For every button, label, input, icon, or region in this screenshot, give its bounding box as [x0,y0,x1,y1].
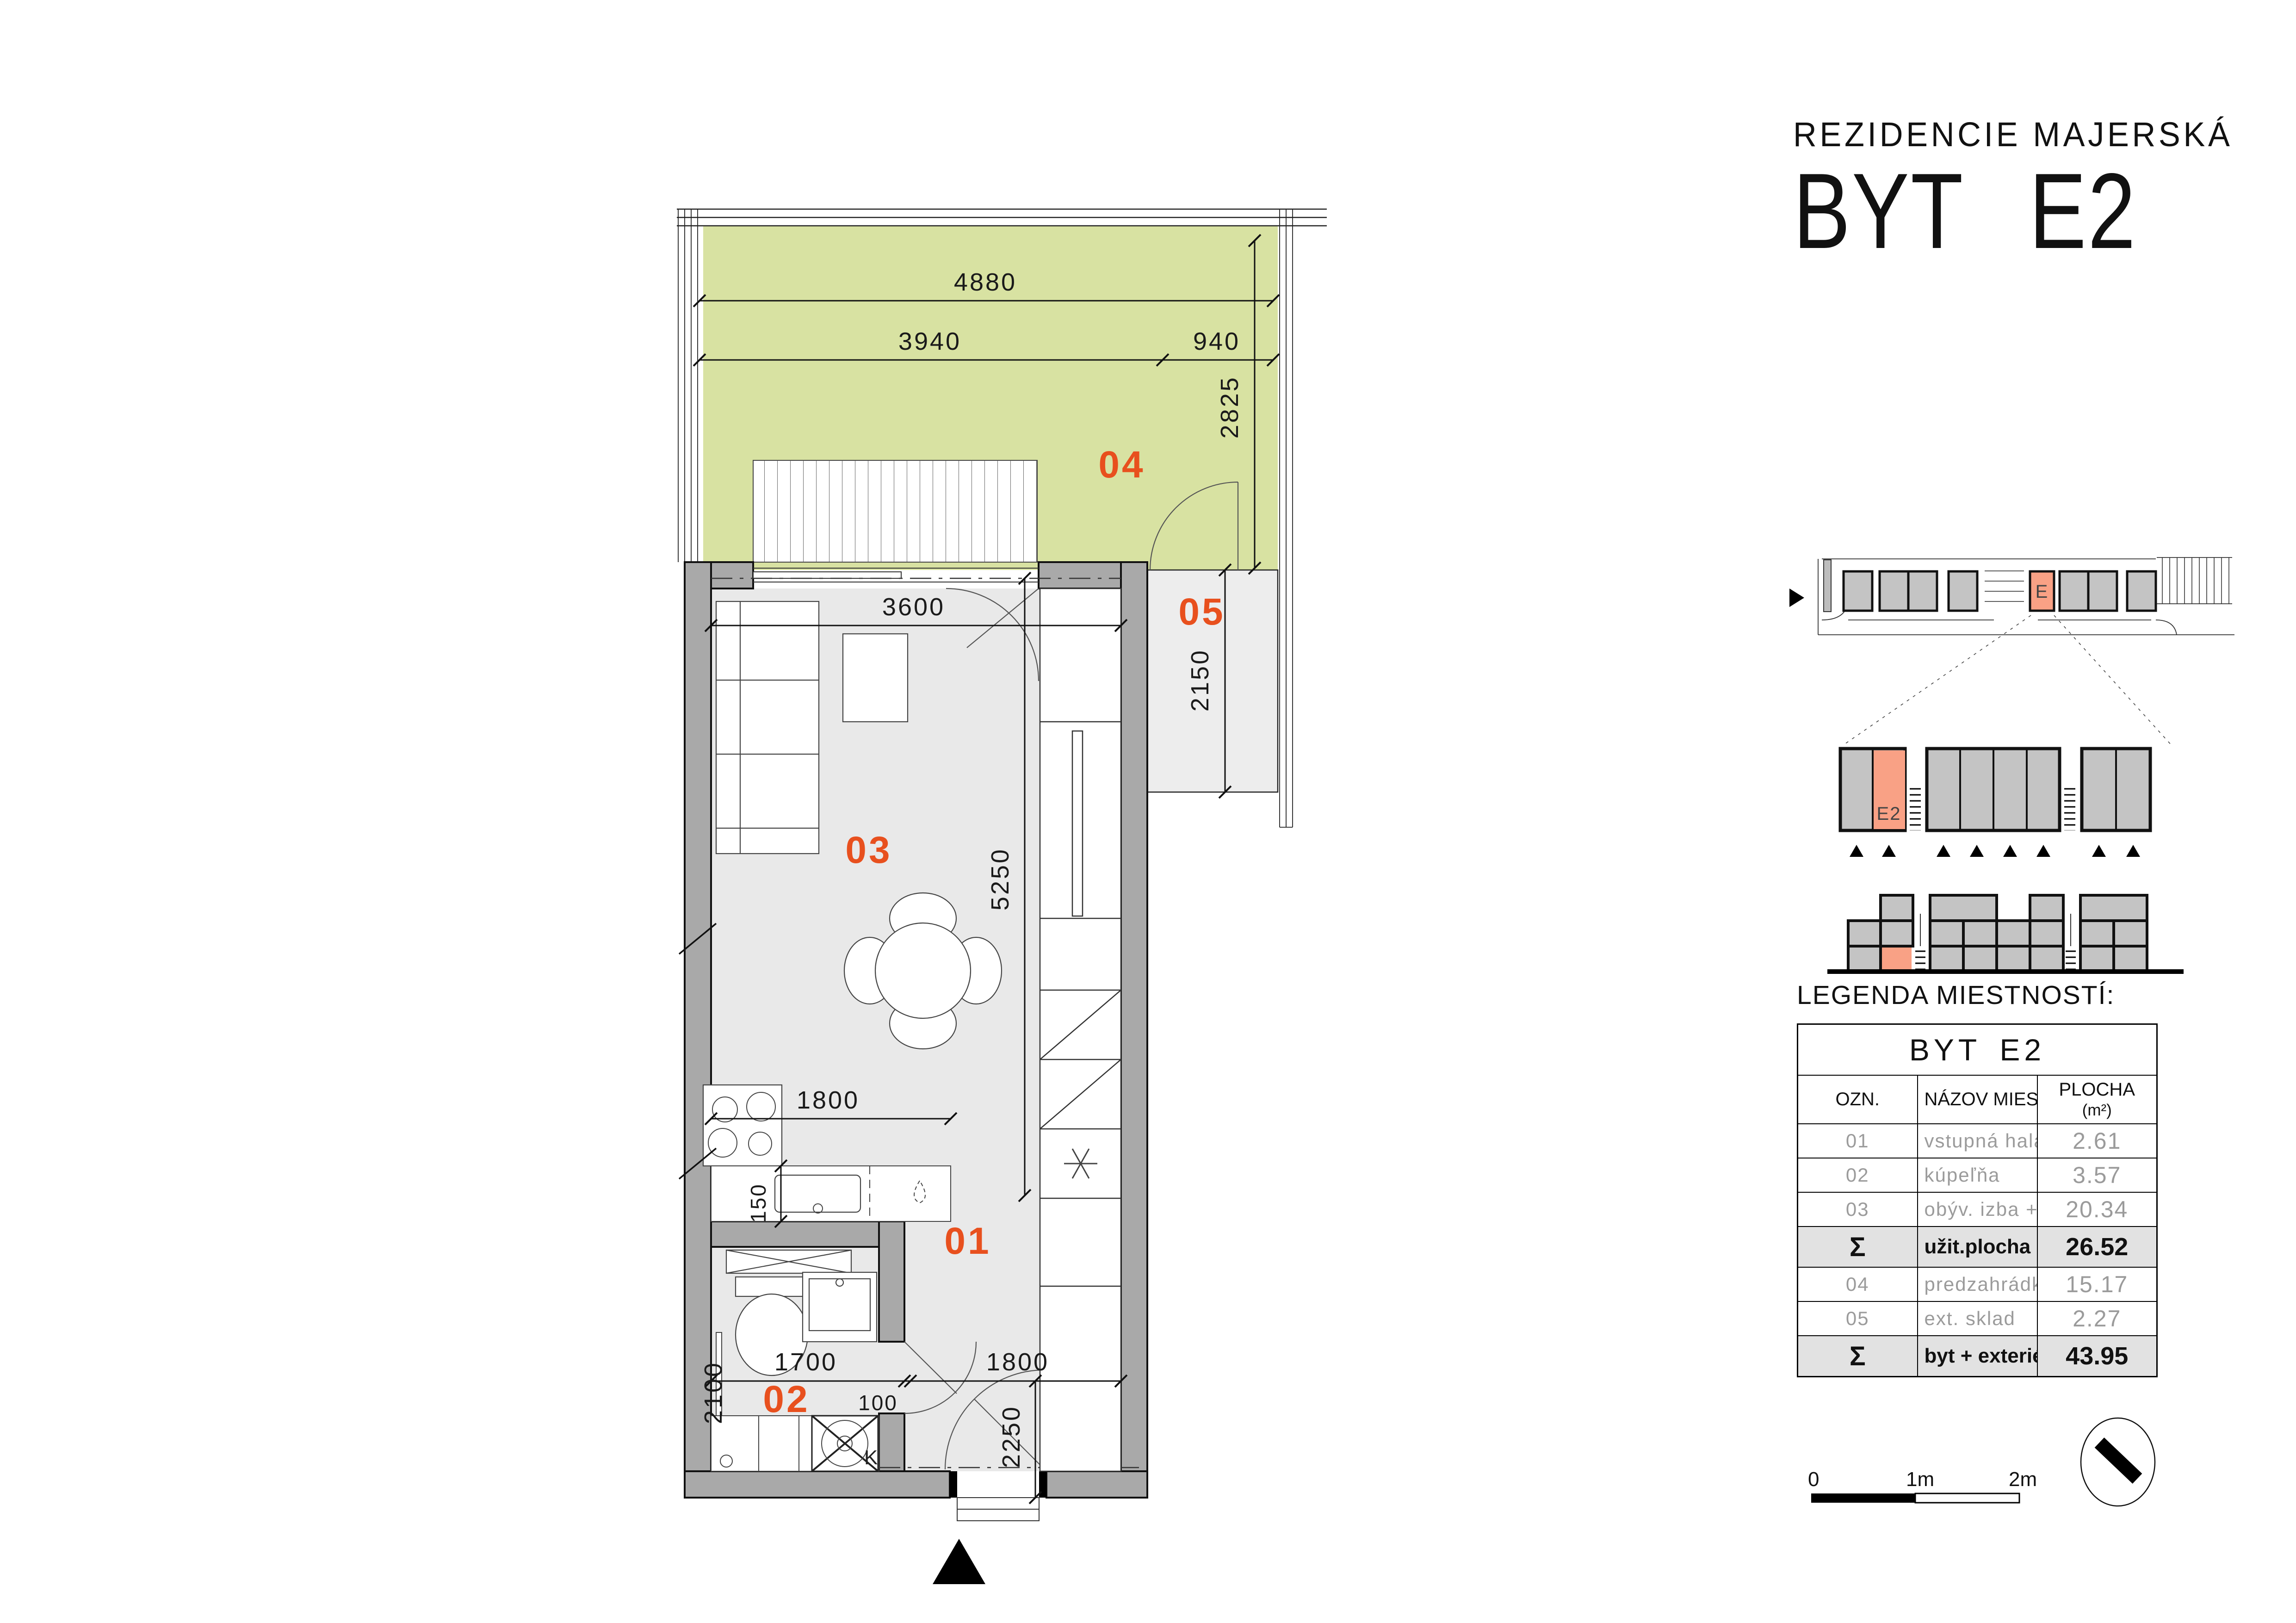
dim-2250: 2250 [997,1405,1025,1468]
dim-100: 100 [858,1391,898,1415]
dim-1800-hall: 1800 [986,1348,1049,1376]
row02-ozn: 02 [1798,1158,1918,1192]
sum2-sigma: Σ [1798,1336,1918,1377]
legend-row-04: 04 predzahrádka 15.17 [1798,1267,2157,1301]
dim-150: 150 [746,1183,770,1223]
legend-table: BYT E2 OZN. NÁZOV MIESTNOSTI PLOCHA (m²)… [1797,1023,2158,1377]
elevation-stair [1915,946,1925,972]
sum1-area: 26.52 [2037,1227,2157,1267]
row04-name: predzahrádka [1918,1267,2037,1301]
dim-940: 940 [1193,328,1240,355]
sofa [716,601,819,854]
row02-name: kúpeľňa [1918,1158,2037,1192]
dim-3600: 3600 [882,593,945,621]
washer-label: K [864,1446,878,1469]
legend-title: LEGENDA MIESTNOSTÍ: [1797,980,2115,1010]
dim-5250: 5250 [986,848,1014,911]
bath-bottom-row [711,1416,879,1471]
site-building-E-label: E [2036,582,2049,602]
coffee-table [843,634,908,722]
room-label-04: 04 [1098,444,1145,486]
project-name: REZIDENCIE MAJERSKÁ [1793,115,2233,154]
legend-row-01: 01 vstupná hala 2.61 [1798,1124,2157,1158]
dim-2825: 2825 [1216,376,1244,439]
entrance-threshold [957,1498,1039,1521]
site-arrow-icon [1789,588,1804,607]
legend-sum-flat: Σ užit.plocha bytu 26.52 [1798,1227,2157,1267]
washbasin [803,1272,877,1342]
site-parking-hatch [2157,558,2232,604]
stair-hatch [1910,787,1921,830]
elevation-E2-cell [1882,948,1912,970]
site-sliver [1824,560,1831,612]
dim-2150: 2150 [1186,649,1214,712]
sliding-door [753,568,1039,582]
col-area-label: PLOCHA [2059,1079,2135,1100]
room-label-03: 03 [845,829,892,871]
scale-bar: 0 1m 2m [1808,1468,2037,1503]
fence-top [677,209,1327,226]
site-parking-hatch [1985,562,2024,608]
entrance-arrow [933,1539,985,1584]
sum2-area: 43.95 [2037,1336,2157,1377]
col-area: PLOCHA (m²) [2037,1075,2157,1124]
floor-plan: 4880 3940 940 2825 3600 5250 2150 1800 1… [677,209,1327,1584]
legend-header-row: BYT E2 [1798,1024,2157,1076]
compass-needle-icon [2099,1443,2137,1479]
deck-terrace [753,460,1037,562]
north-compass [2081,1418,2155,1506]
row01-area: 2.61 [2037,1124,2157,1158]
row05-area: 2.27 [2037,1301,2157,1336]
legend-columns-row: OZN. NÁZOV MIESTNOSTI PLOCHA (m²) [1798,1075,2157,1124]
sum1-name: užit.plocha bytu [1918,1227,2037,1267]
row05-name: ext. sklad [1918,1301,2037,1336]
room-label-01: 01 [944,1220,991,1262]
room-label-05: 05 [1178,591,1225,633]
row04-area: 15.17 [2037,1267,2157,1301]
row01-ozn: 01 [1798,1124,1918,1158]
col-area-unit: (m²) [2044,1101,2150,1120]
title-block: REZIDENCIE MAJERSKÁ BYT E2 [1793,115,2256,265]
unit-entry-arrows [1850,845,2140,857]
door-jamb [950,1471,957,1498]
legend-sum-total: Σ byt + exteriér 43.95 [1798,1336,2157,1377]
dim-3940: 3940 [898,328,961,355]
row04-ozn: 04 [1798,1267,1918,1301]
row01-name: vstupná hala [1918,1124,2037,1158]
scale-1m: 1m [1906,1468,1934,1491]
dim-4880: 4880 [954,268,1017,296]
cabinet-strip [1040,588,1121,1471]
fence-right [1280,209,1293,827]
sum2-name: byt + exteriér [1918,1336,2037,1377]
col-ozn: OZN. [1798,1075,1918,1124]
row03-name: obýv. izba + kuchyňa [1918,1192,2037,1227]
row02-area: 3.57 [2037,1158,2157,1192]
dim-2100: 2100 [699,1361,727,1424]
room-label-02: 02 [763,1378,810,1420]
unit-E2-label: E2 [1877,804,1901,824]
row05-ozn: 05 [1798,1301,1918,1336]
scale-0: 0 [1808,1468,1819,1491]
fence-left [678,209,698,562]
row03-ozn: 03 [1798,1192,1918,1227]
legend-row-05: 05 ext. sklad 2.27 [1798,1301,2157,1336]
floorplan-sheet: 4880 3940 940 2825 3600 5250 2150 1800 1… [0,0,2296,1623]
sum1-sigma: Σ [1798,1227,1918,1267]
unit-name: BYT E2 [1793,158,2163,265]
scale-2m: 2m [2009,1468,2037,1491]
stair-hatch [2064,787,2075,830]
dim-1700: 1700 [774,1348,837,1376]
dim-1800-kitchen: 1800 [797,1086,860,1114]
legend-row-03: 03 obýv. izba + kuchyňa 20.34 [1798,1192,2157,1227]
col-name: NÁZOV MIESTNOSTI [1918,1075,2037,1124]
elevation-diagram [1827,895,2184,972]
legend-table-title: BYT E2 [1798,1024,2157,1076]
row03-area: 20.34 [2037,1192,2157,1227]
legend-row-02: 02 kúpeľňa 3.57 [1798,1158,2157,1192]
site-plan: E [1789,558,2234,746]
elevation-stair [2066,946,2076,972]
unit-dividers [1873,749,2116,830]
unit-row-diagram: E2 [1840,749,2150,857]
